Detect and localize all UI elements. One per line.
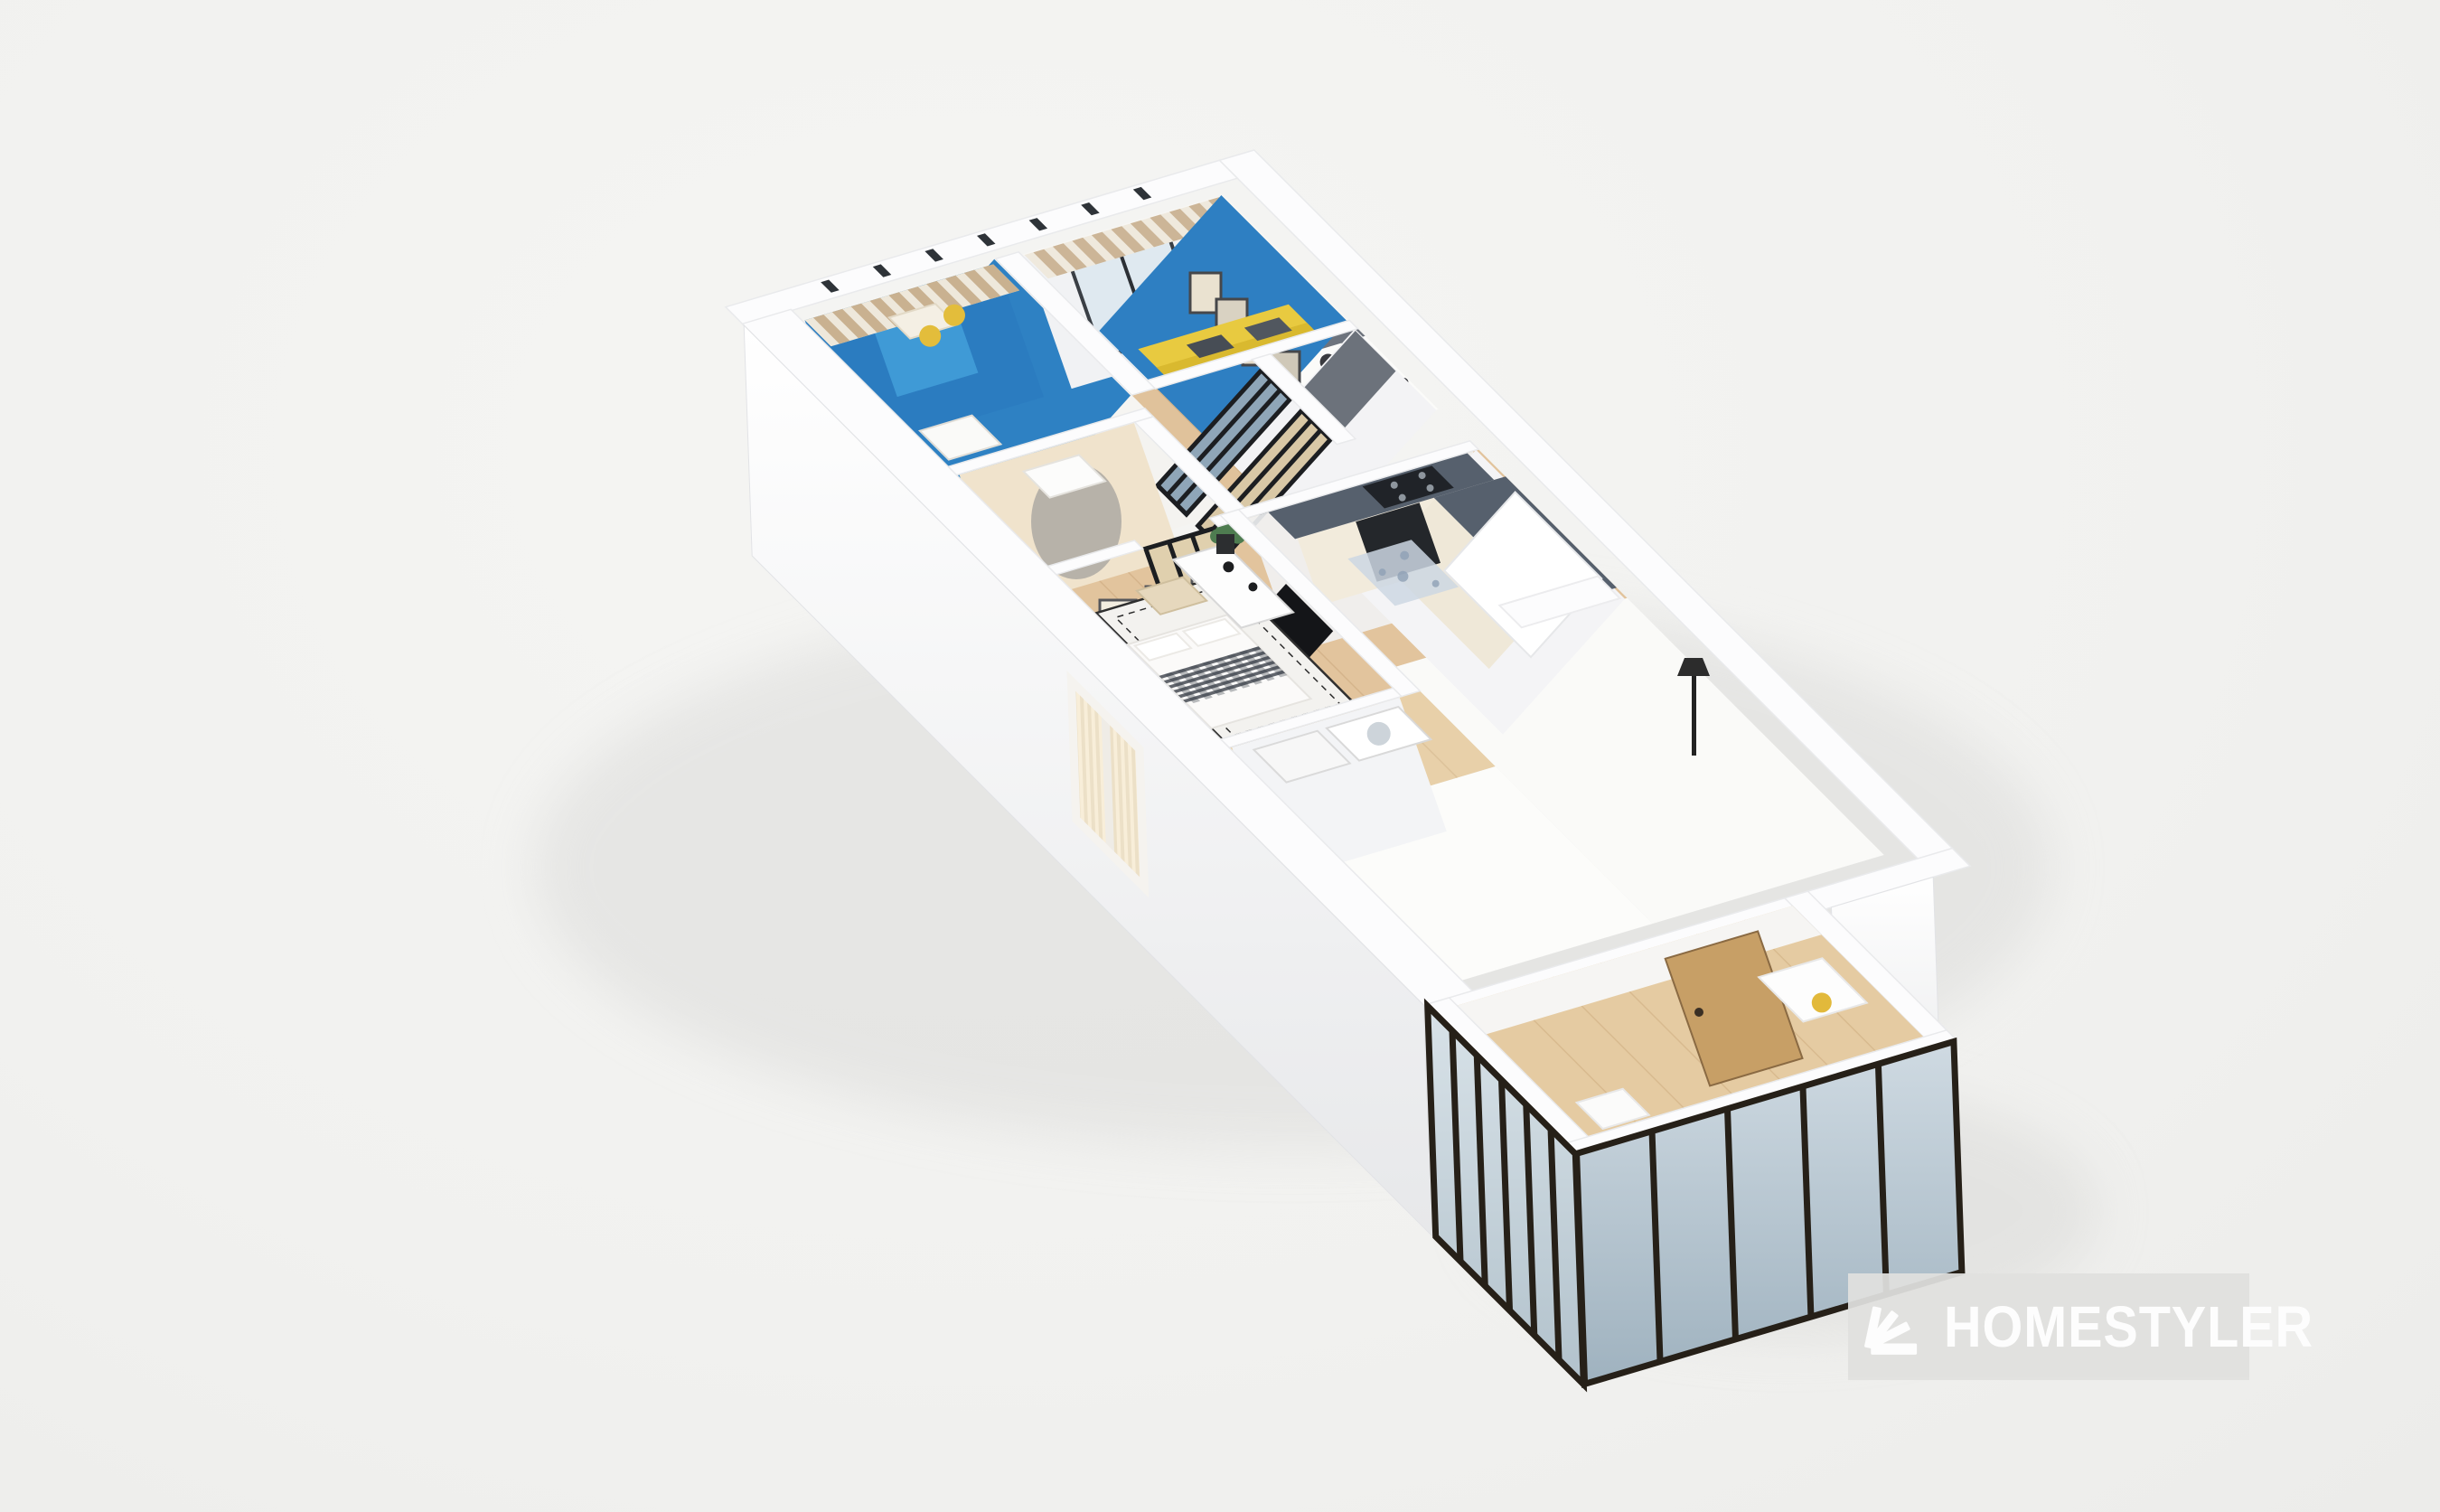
kitchen-hob-burners xyxy=(1427,484,1434,492)
balcony-stool-yellow xyxy=(1812,992,1832,1012)
desk-items xyxy=(1223,561,1234,572)
balcony-door-handle xyxy=(1694,1008,1703,1017)
kitchen-hob-burners xyxy=(1391,482,1398,489)
homestyler-watermark-text: HOMESTYLER xyxy=(1944,1293,2313,1360)
kitchen-rug-pattern xyxy=(1432,580,1440,587)
kitchen-hob-burners xyxy=(1399,494,1406,502)
bedroom-blue-stools xyxy=(919,325,941,347)
desk-items xyxy=(1248,582,1257,591)
bedroom-window-frame-mullion xyxy=(1105,715,1110,853)
floor-lamp-stand xyxy=(1692,676,1696,756)
render-canvas: HOMESTYLER xyxy=(0,0,2440,1512)
homestyler-fan-icon xyxy=(1863,1293,1929,1360)
kitchen-rug-pattern xyxy=(1397,571,1408,582)
entry-washer-door xyxy=(1367,722,1391,746)
homestyler-floorplan-screenshot: { "watermark": { "text": "HOMESTYLER", "… xyxy=(0,0,2440,1512)
bedroom-blue-stools xyxy=(943,305,965,326)
kitchen-rug-pattern xyxy=(1379,568,1386,576)
kitchen-rug-pattern xyxy=(1400,551,1409,560)
kitchen-hob-burners xyxy=(1419,472,1426,479)
homestyler-watermark-band: HOMESTYLER xyxy=(1848,1273,2249,1380)
potted-plant-pot xyxy=(1216,534,1234,554)
